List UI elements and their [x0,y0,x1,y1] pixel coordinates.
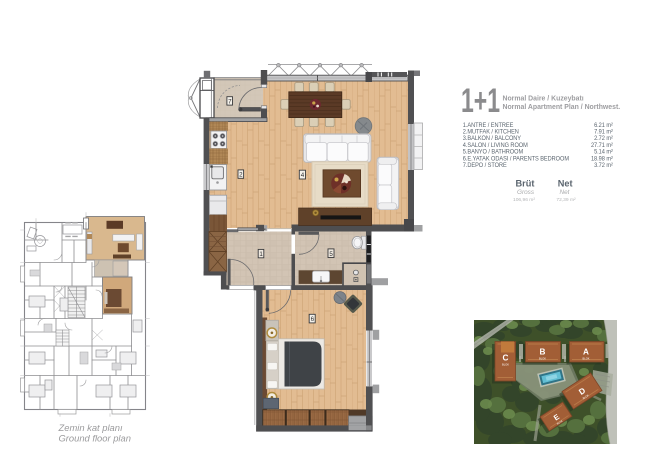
svg-text:Normal Daire / Kuzeybatı: Normal Daire / Kuzeybatı [503,95,584,102]
svg-text:3.72 m²: 3.72 m² [594,162,613,170]
svg-text:BLOK: BLOK [502,363,509,367]
svg-text:5: 5 [329,251,333,258]
svg-text:106,96 m²: 106,96 m² [513,197,535,203]
svg-text:Normal Apartment Plan / Northw: Normal Apartment Plan / Northwest. [503,104,621,111]
svg-text:A: A [583,348,589,357]
svg-text:Ground floor plan: Ground floor plan [59,433,131,444]
svg-text:2: 2 [239,172,243,179]
svg-text:BLOK: BLOK [539,356,546,360]
svg-text:BLOK: BLOK [583,356,590,360]
svg-text:Brüt: Brüt [516,178,535,188]
svg-text:1+1: 1+1 [461,82,500,120]
svg-text:Net: Net [558,178,573,188]
svg-text:Net: Net [560,189,570,196]
svg-text:7: 7 [228,98,232,105]
svg-text:4: 4 [301,172,305,179]
svg-text:C: C [503,354,509,363]
svg-text:72,39 m²: 72,39 m² [556,197,576,203]
svg-text:7.DEPO / STORE: 7.DEPO / STORE [463,162,507,170]
svg-text:Zemin kat planı: Zemin kat planı [58,422,123,433]
svg-text:1: 1 [259,251,263,258]
svg-text:Gross: Gross [517,189,535,196]
svg-text:6: 6 [311,316,315,323]
svg-text:B: B [540,348,546,357]
